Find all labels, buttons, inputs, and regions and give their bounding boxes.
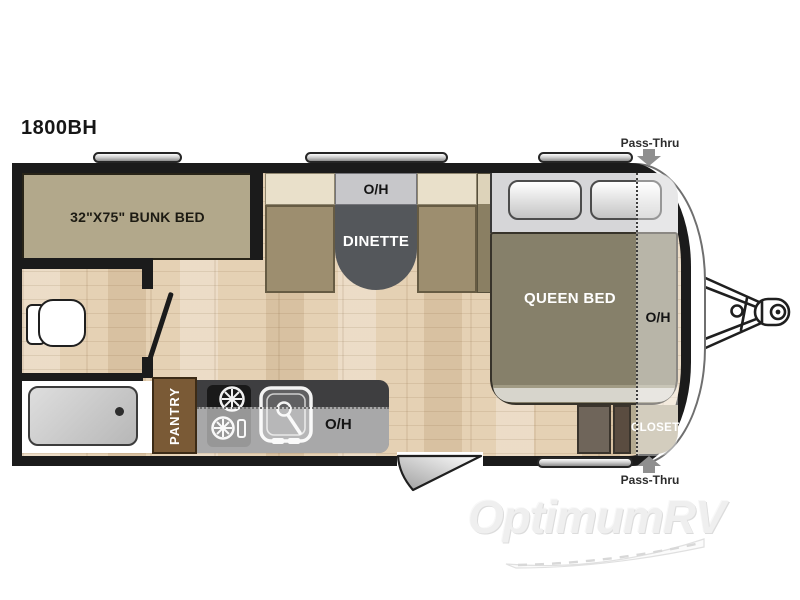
arrow-shaft <box>643 149 655 156</box>
pass-thru-top-label: Pass-Thru <box>607 136 693 150</box>
dinette-bench-right <box>417 205 477 293</box>
entry-door-swing <box>395 452 485 494</box>
wall-bath-top <box>22 258 153 269</box>
kitchen-oh-label: O/H <box>325 416 352 433</box>
arrow-up-icon <box>637 456 661 473</box>
toilet-icon <box>26 299 88 351</box>
tub-basin <box>28 386 138 446</box>
window-icon <box>537 457 633 468</box>
wall-bunk-right <box>250 173 263 260</box>
tub-drain <box>115 407 124 416</box>
window-icon <box>93 152 182 163</box>
arrow-shaft <box>643 466 655 473</box>
arrow-head <box>637 156 661 166</box>
arrow-down-icon <box>637 149 661 166</box>
pantry-cabinet: PANTRY <box>152 377 197 454</box>
floorplan-page: 32"X75" BUNK BED PANTRY O/H <box>0 0 800 600</box>
bunk-bed: 32"X75" BUNK BED <box>22 173 253 260</box>
page-title: 1800BH <box>21 117 97 140</box>
dinette-bench-back-right <box>417 173 477 205</box>
bed-step <box>613 405 631 454</box>
queen-bed-label: QUEEN BED <box>524 290 616 307</box>
dinette-overhead-cabinet: O/H <box>335 173 417 205</box>
dinette-table: DINETTE <box>335 205 417 290</box>
pantry-label: PANTRY <box>167 387 182 445</box>
dinette-bench-left <box>265 205 335 293</box>
bunk-bed-label: 32"X75" BUNK BED <box>70 209 205 225</box>
toilet-bowl <box>38 299 86 347</box>
kitchen-overhead-cabinet: O/H <box>197 407 389 453</box>
logo-road-icon <box>504 536 708 572</box>
bedroom-oh-label: O/H <box>638 309 678 325</box>
arrow-head <box>637 456 661 466</box>
shower-tub-icon <box>22 381 152 453</box>
watermark-logo: OptimumRV <box>468 490 798 585</box>
pass-thru-bottom-label: Pass-Thru <box>607 473 693 487</box>
window-icon <box>305 152 448 163</box>
bedroom-overhead-strip: O/H <box>636 173 678 456</box>
window-icon <box>538 152 633 163</box>
pillow <box>508 180 582 220</box>
wall-tub-top <box>22 373 143 381</box>
bed-step <box>577 405 611 454</box>
dinette-oh-label: O/H <box>364 181 389 197</box>
dinette-table-label: DINETTE <box>343 233 409 250</box>
wall-stub-upper <box>142 258 153 289</box>
dinette-bench-back-left <box>265 173 335 205</box>
